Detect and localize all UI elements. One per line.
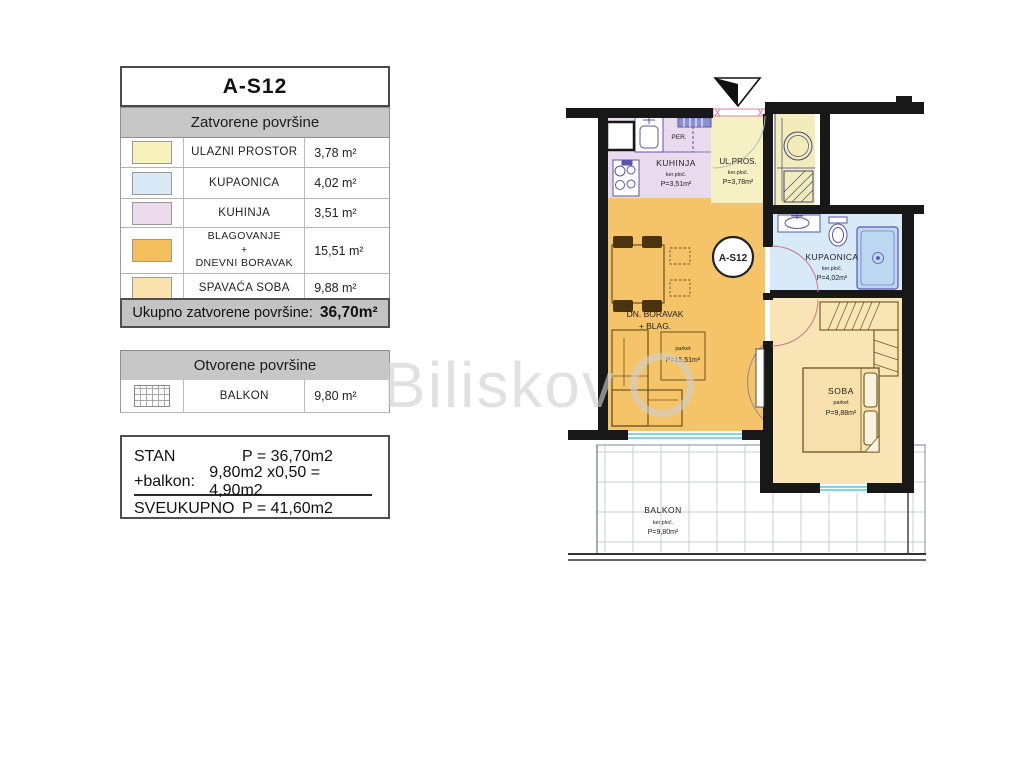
room-living-dining [607,198,765,440]
table-row: KUPAONICA 4,02 m² [121,168,389,199]
bedroom-area: P=9,88m² [826,410,857,417]
color-swatch-kupaonica [132,172,172,195]
shower [857,227,898,289]
room-label: BLAGOVANJE + DNEVNI BORAVAK [184,228,305,273]
washer-label: PER. [671,134,686,141]
room-label: KUPAONICA [184,168,305,198]
bathroom-sink [778,213,820,232]
closed-areas-header: Zatvorene površine [120,107,390,138]
room-area: 4,02 m² [305,168,389,198]
bathroom-area: P=4,02m² [817,275,848,282]
summary-line-balkon: +balkon: 9,80m2 x0,50 = 4,90m2 [134,469,372,496]
entrance-marker-icon [715,78,760,106]
shaft [607,122,634,150]
toilet [829,217,847,246]
room-area: 3,78 m² [305,138,389,167]
sveukupno-label: SVEUKUPNO [134,500,242,518]
unit-title: A-S12 [120,66,390,107]
balcony-name: BALKON [644,505,682,515]
table-row: KUHINJA 3,51 m² [121,199,389,228]
room-area: 3,51 m² [305,199,389,227]
swatch-cell [121,199,184,227]
closed-total-label: Ukupno zatvorene površine: [132,305,313,321]
balcony-area: P=9,80m² [648,529,679,536]
swatch-cell [121,228,184,273]
table-row: BALKON 9,80 m² [121,380,389,413]
closed-total-value: 36,70m² [320,304,378,322]
swatch-cell [121,168,184,198]
summary-line-total: SVEUKUPNO P = 41,60m2 [134,496,376,521]
closed-areas-table: ULAZNI PROSTOR 3,78 m² KUPAONICA 4,02 m²… [120,138,390,303]
color-swatch-soba [132,277,172,300]
kitchen-cabinet [678,118,711,127]
kitchen-floor: ker.ploč. [666,172,687,178]
bathroom-floor: ker.ploč. [822,266,843,272]
bedroom-floor: parket [833,400,849,406]
door-panel [756,349,764,407]
color-swatch-kuhinja [132,202,172,225]
swatch-cell [121,380,184,412]
balkon-value: 9,80m2 x0,50 = 4,90m2 [209,464,372,500]
room-label: BALKON [184,380,305,412]
summary-box: STAN P = 36,70m2 +balkon: 9,80m2 x0,50 =… [120,435,390,519]
room-area: 15,51 m² [305,228,389,273]
living-window [626,431,742,441]
stove [613,160,639,196]
floor-plan: A-S12 PER. KUHINJA ker.ploč. P=3,51m² UL… [558,68,930,568]
living-name-line2: + BLAG. [639,321,671,331]
color-swatch-boravak [132,239,172,262]
entrance-threshold [713,109,765,116]
entrance-floor: ker.ploč. [728,170,749,176]
open-areas-header: Otvorene površine [120,350,390,381]
page: A-S12 Zatvorene površine ULAZNI PROSTOR … [0,0,1024,768]
grid-swatch-balkon [134,385,170,407]
color-swatch-ulazni [132,141,172,164]
open-areas-table: BALKON 9,80 m² [120,380,390,413]
swatch-cell [121,138,184,167]
room-area: 9,80 m² [305,380,389,412]
table-row: BLAGOVANJE + DNEVNI BORAVAK 15,51 m² [121,228,389,274]
kitchen-name: KUHINJA [656,158,696,168]
balcony-floor: ker.ploč. [653,520,674,526]
bedroom-name: SOBA [828,386,854,396]
closed-total-bar: Ukupno zatvorene površine: 36,70m² [120,298,390,328]
living-name-line1: DN. BORAVAK [627,309,684,319]
entrance-name: UL.PROS. [719,157,756,166]
sveukupno-value: P = 41,60m2 [242,500,333,518]
room-label: KUHINJA [184,199,305,227]
living-area: P=15,51m² [666,357,701,364]
living-floor: parket [675,346,691,352]
unit-badge: A-S12 [713,237,753,277]
entrance-area: P=3,78m² [723,179,754,186]
bedroom-window [820,484,867,493]
unit-badge-label: A-S12 [719,253,748,264]
bathroom-name: KUPAONICA [805,252,858,262]
kitchen-area: P=3,51m² [661,181,692,188]
balkon-label: +balkon: [134,473,209,491]
room-label: ULAZNI PROSTOR [184,138,305,167]
table-row: ULAZNI PROSTOR 3,78 m² [121,138,389,168]
